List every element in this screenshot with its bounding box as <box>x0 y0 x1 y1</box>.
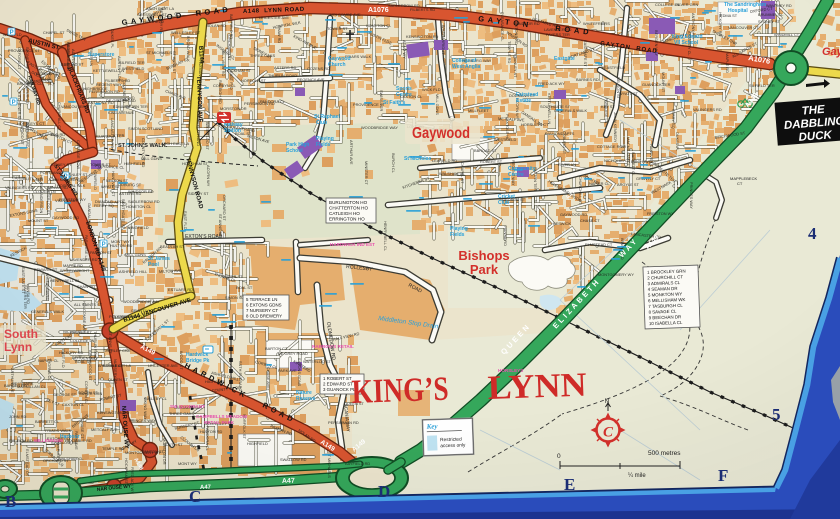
svg-text:B: B <box>5 492 16 511</box>
svg-text:D: D <box>378 482 390 501</box>
svg-text:F: F <box>718 466 728 485</box>
svg-text:4: 4 <box>808 224 817 243</box>
svg-text:5: 5 <box>772 405 781 424</box>
svg-text:C: C <box>189 487 201 506</box>
svg-text:E: E <box>564 475 575 494</box>
